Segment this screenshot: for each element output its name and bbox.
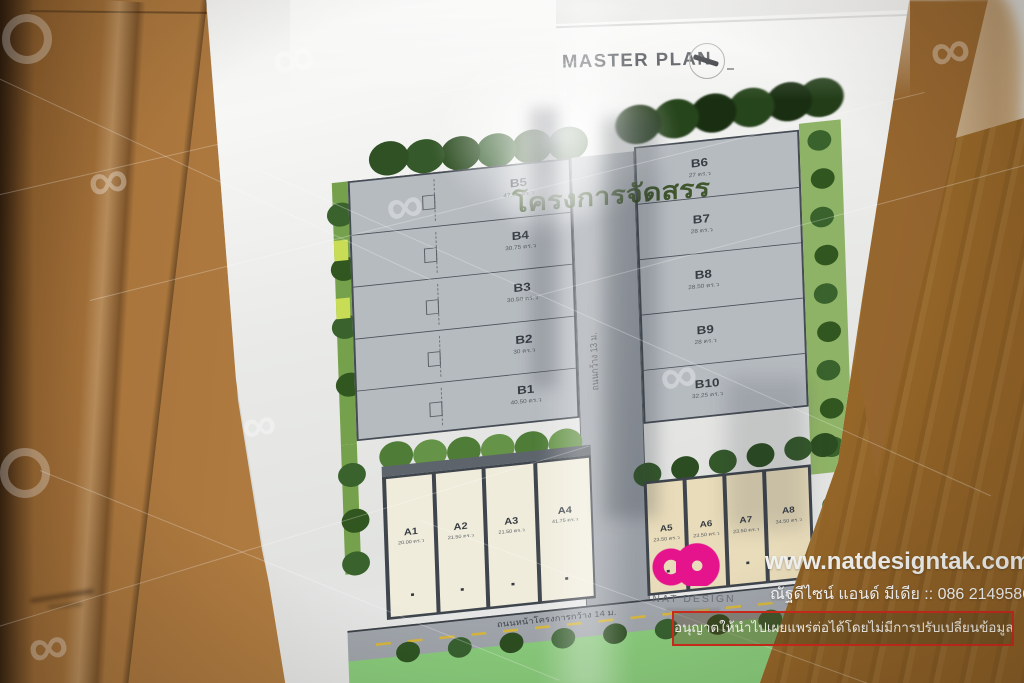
photo-vignette bbox=[0, 0, 1024, 683]
photo-scene: MASTER PLAN B5 47.75 ตร.ว bbox=[0, 0, 1024, 683]
